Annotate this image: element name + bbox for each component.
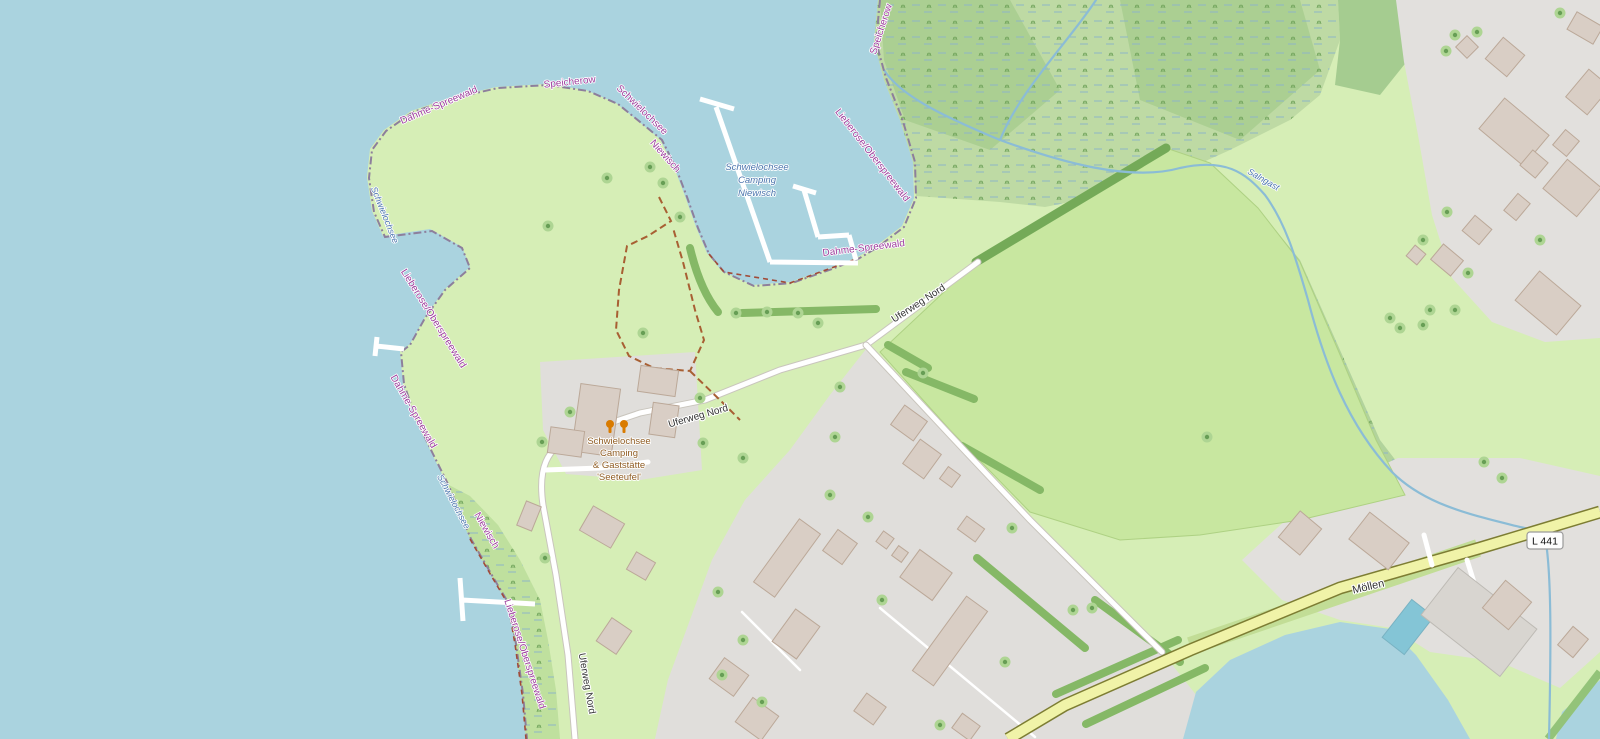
svg-text:Camping: Camping (600, 448, 638, 459)
svg-text:& Gaststätte: & Gaststätte (593, 460, 645, 471)
svg-text:Schwielochsee: Schwielochsee (587, 436, 650, 447)
svg-text:'Seeteufel': 'Seeteufel' (597, 472, 641, 483)
svg-text:Niewisch: Niewisch (738, 188, 776, 199)
road-shield-l441: L 441 (1527, 532, 1563, 549)
svg-text:L 441: L 441 (1532, 536, 1558, 548)
svg-text:Camping: Camping (738, 175, 777, 186)
svg-text:Schwielochsee: Schwielochsee (725, 162, 788, 173)
map-canvas[interactable]: Dahme-Spreewald Speicherow Schwielochsee… (0, 0, 1600, 739)
